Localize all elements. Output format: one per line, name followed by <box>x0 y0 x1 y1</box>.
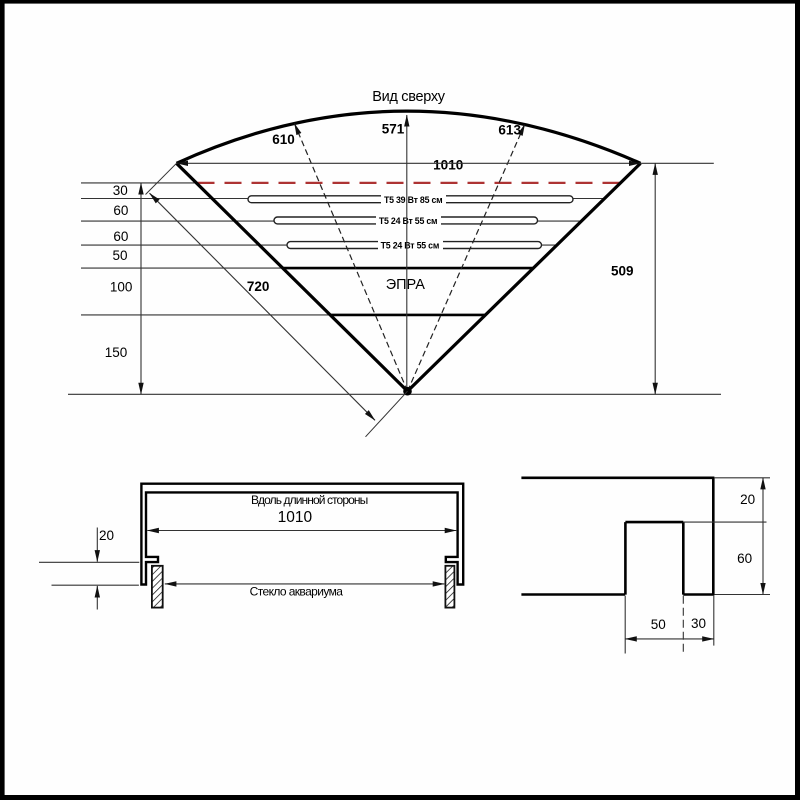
svg-text:Стекло аквариума: Стекло аквариума <box>250 585 344 599</box>
svg-text:60: 60 <box>113 229 128 244</box>
svg-text:1010: 1010 <box>278 509 313 526</box>
svg-text:30: 30 <box>113 183 128 198</box>
svg-text:100: 100 <box>110 280 133 295</box>
svg-text:Вдоль длинной стороны: Вдоль длинной стороны <box>251 493 368 507</box>
svg-text:30: 30 <box>691 616 706 631</box>
svg-text:ЭПРА: ЭПРА <box>386 277 426 293</box>
svg-text:Вид сверху: Вид сверху <box>372 89 446 105</box>
svg-text:150: 150 <box>105 345 128 360</box>
svg-text:50: 50 <box>651 617 666 632</box>
svg-text:60: 60 <box>113 203 128 218</box>
svg-text:20: 20 <box>740 492 755 507</box>
svg-text:T5 39 Вт 85 см: T5 39 Вт 85 см <box>384 195 442 205</box>
svg-text:20: 20 <box>99 528 114 543</box>
svg-text:1010: 1010 <box>433 158 463 173</box>
svg-text:610: 610 <box>272 132 295 147</box>
svg-text:720: 720 <box>247 279 270 294</box>
svg-text:T5 24 Вт 55 см: T5 24 Вт 55 см <box>381 241 439 251</box>
svg-text:509: 509 <box>611 263 634 278</box>
svg-text:50: 50 <box>112 248 127 263</box>
svg-text:571: 571 <box>382 122 405 137</box>
svg-text:613: 613 <box>498 123 521 138</box>
svg-text:60: 60 <box>737 551 752 566</box>
svg-text:T5 24 Вт 55 см: T5 24 Вт 55 см <box>379 216 437 226</box>
